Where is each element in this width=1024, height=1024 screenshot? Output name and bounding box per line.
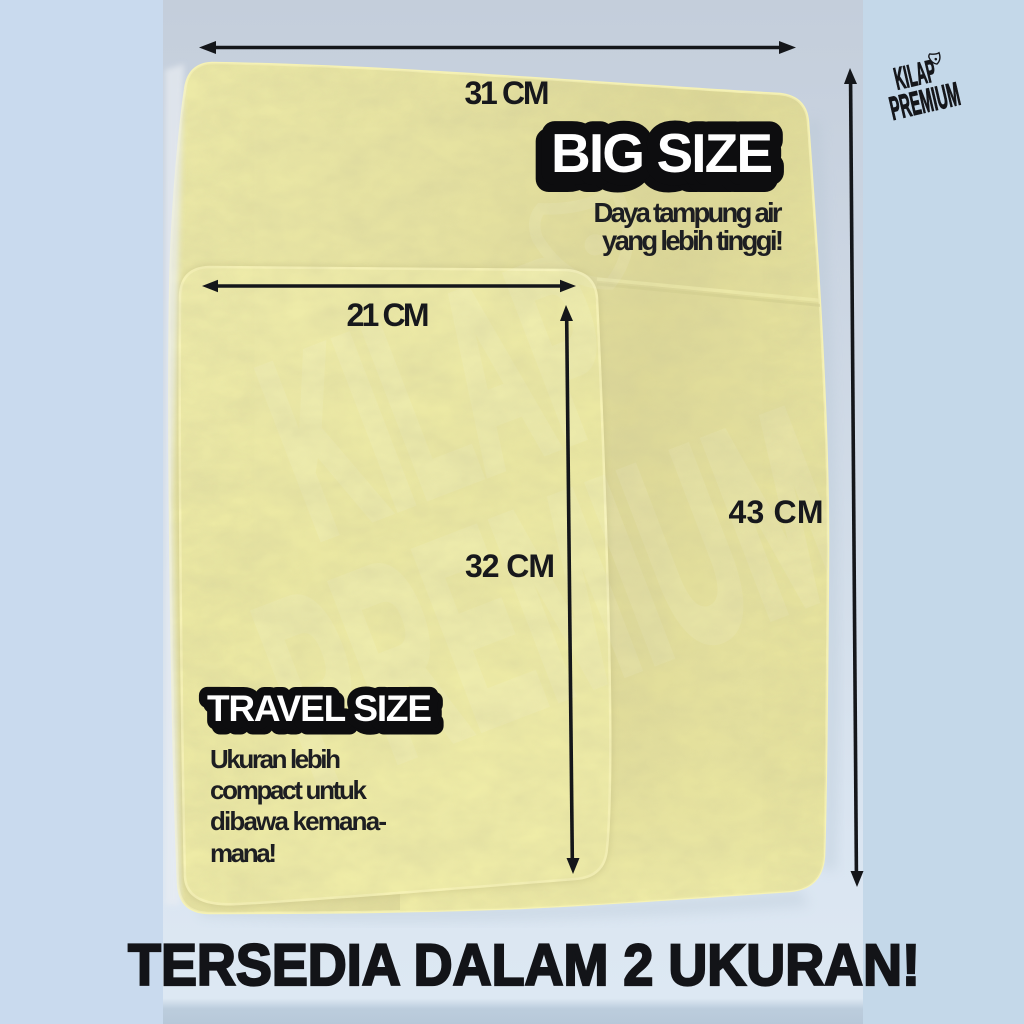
svg-text:TRAVEL SIZE: TRAVEL SIZE <box>207 688 432 729</box>
svg-text:31 CM: 31 CM <box>465 75 550 111</box>
svg-text:TERSEDIA DALAM 2 UKURAN!: TERSEDIA DALAM 2 UKURAN! <box>128 933 920 998</box>
svg-text:Daya tampung air: Daya tampung air <box>594 197 783 228</box>
svg-text:BIG SIZE: BIG SIZE <box>551 122 773 184</box>
svg-text:mana!: mana! <box>210 838 277 868</box>
svg-text:yang lebih tinggi!: yang lebih tinggi! <box>602 225 784 256</box>
svg-text:21 CM: 21 CM <box>347 297 430 333</box>
svg-text:dibawa kemana-: dibawa kemana- <box>210 806 387 836</box>
svg-text:Ukuran lebih: Ukuran lebih <box>210 744 341 774</box>
svg-text:compact untuk: compact untuk <box>210 775 368 805</box>
svg-text:43 CM: 43 CM <box>729 494 824 530</box>
svg-text:32 CM: 32 CM <box>465 548 555 584</box>
